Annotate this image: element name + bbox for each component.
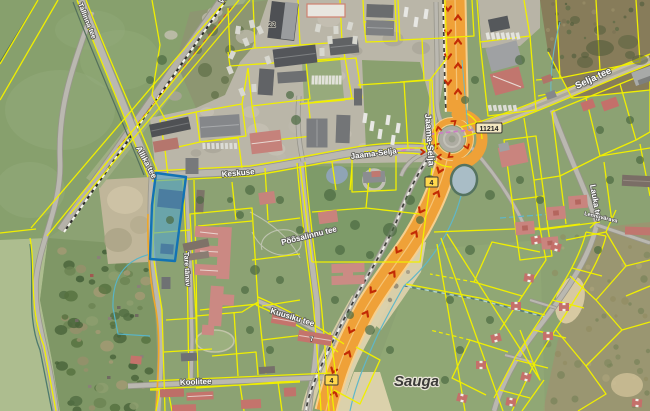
svg-text:4: 4 xyxy=(430,180,434,187)
svg-text:Sauga: Sauga xyxy=(394,373,439,390)
svg-text:22: 22 xyxy=(268,22,276,29)
svg-text:Koolitee: Koolitee xyxy=(180,377,212,387)
svg-text:11214: 11214 xyxy=(479,126,498,133)
svg-text:4: 4 xyxy=(330,378,334,385)
